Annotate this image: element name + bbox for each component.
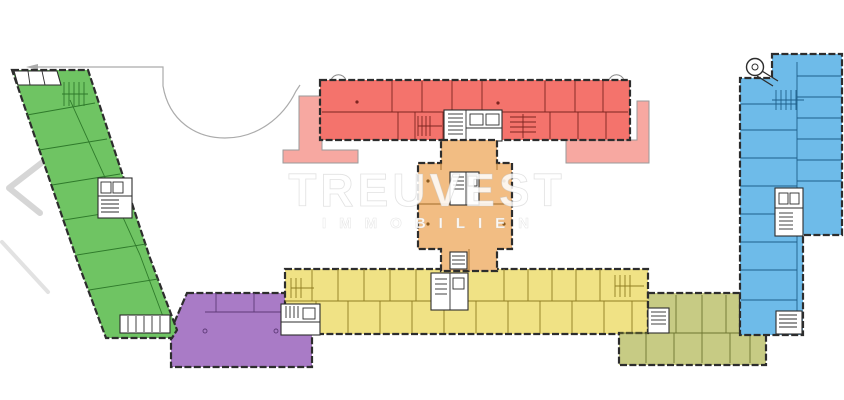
watermark-line2: IMMOBILIEN: [322, 215, 542, 232]
watermark-line1: TREUVEST: [288, 164, 565, 216]
entrance-arrow-icon: [9, 161, 44, 213]
blue-bottom-core: [776, 311, 802, 334]
green-stair-core: [98, 178, 132, 218]
driveway-line: [2, 242, 48, 292]
wing-green: [12, 70, 177, 338]
red-stair-core: [444, 110, 502, 141]
green-outline: [12, 70, 177, 338]
floor-plan: TREUVEST IMMOBILIEN: [0, 0, 844, 400]
watermark: TREUVEST IMMOBILIEN: [288, 164, 565, 232]
floor-plan-drawing: TREUVEST IMMOBILIEN: [0, 0, 844, 400]
olive-stair-core: [648, 308, 669, 333]
yellow-stair-core-mid: [431, 273, 468, 310]
green-roof-block: [14, 71, 61, 85]
wing-yellow: [281, 269, 648, 335]
driveway-marks: [2, 161, 48, 292]
yellow-stair-core-left: [281, 304, 320, 335]
blue-stair-core: [775, 188, 803, 236]
orange-connector-stair: [450, 252, 467, 269]
green-bottom-stair: [120, 315, 170, 333]
wing-red: [320, 75, 630, 141]
wing-blue: [740, 54, 842, 335]
